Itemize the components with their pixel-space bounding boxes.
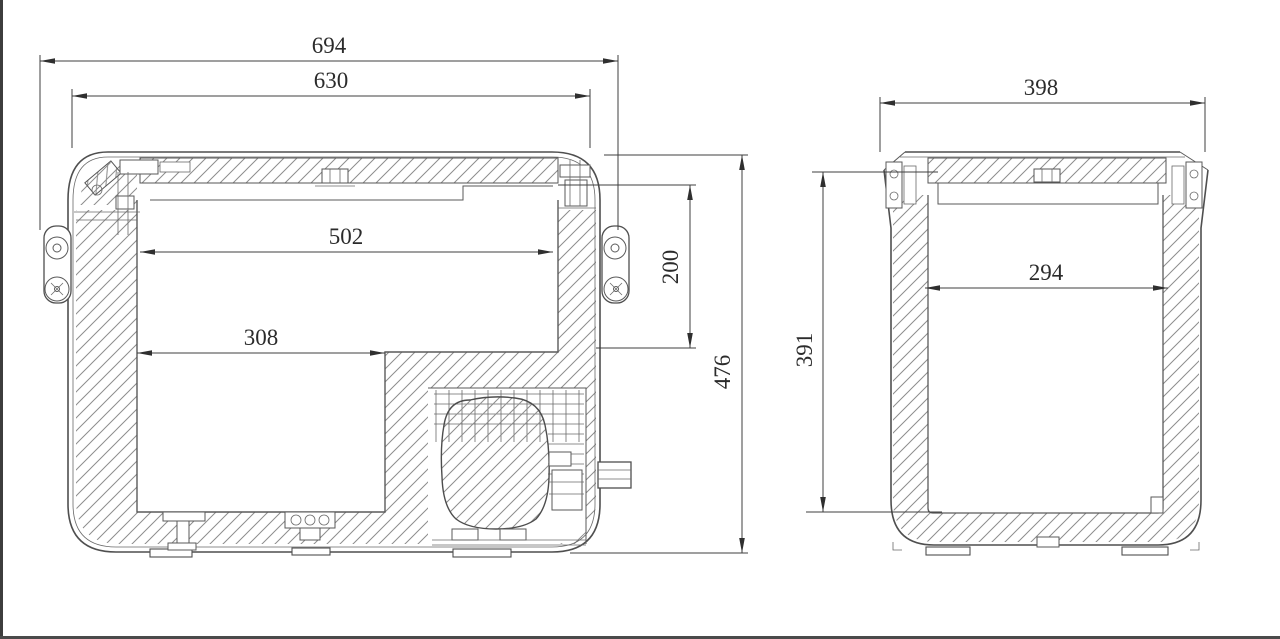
side-outer-shell bbox=[884, 170, 1208, 545]
dim-label-308: 308 bbox=[244, 325, 279, 350]
dim-front-inner-width-upper: 502 bbox=[140, 224, 553, 255]
right-handle-bracket bbox=[602, 226, 629, 303]
left-handle-bracket bbox=[44, 226, 71, 303]
front-section-view bbox=[44, 152, 631, 557]
dim-label-391: 391 bbox=[792, 333, 817, 368]
dim-label-476: 476 bbox=[710, 355, 735, 390]
technical-drawing: 694 630 502 308 bbox=[0, 0, 1280, 639]
power-connector bbox=[598, 462, 631, 488]
side-lid bbox=[884, 152, 1208, 204]
side-cavity-outline bbox=[928, 195, 1163, 513]
side-insulation-hatch bbox=[893, 195, 1199, 542]
dim-label-502: 502 bbox=[329, 224, 364, 249]
dim-side-overall-width: 398 bbox=[880, 75, 1205, 152]
dim-label-294: 294 bbox=[1029, 260, 1064, 285]
dim-front-lid-width: 630 bbox=[72, 68, 590, 148]
dim-label-200: 200 bbox=[658, 250, 683, 285]
dim-front-overall-height: 476 bbox=[570, 155, 748, 553]
compressor bbox=[441, 397, 549, 529]
dim-label-398: 398 bbox=[1024, 75, 1059, 100]
dim-label-630: 630 bbox=[314, 68, 349, 93]
dim-side-inner-width: 294 bbox=[925, 260, 1168, 291]
front-top-right-corner bbox=[558, 160, 596, 208]
front-lid bbox=[140, 158, 558, 200]
side-cavity-notch bbox=[1151, 497, 1163, 513]
dim-label-694: 694 bbox=[312, 33, 347, 58]
side-section-view bbox=[884, 152, 1208, 555]
dim-front-inner-width-lower: 308 bbox=[137, 325, 385, 356]
